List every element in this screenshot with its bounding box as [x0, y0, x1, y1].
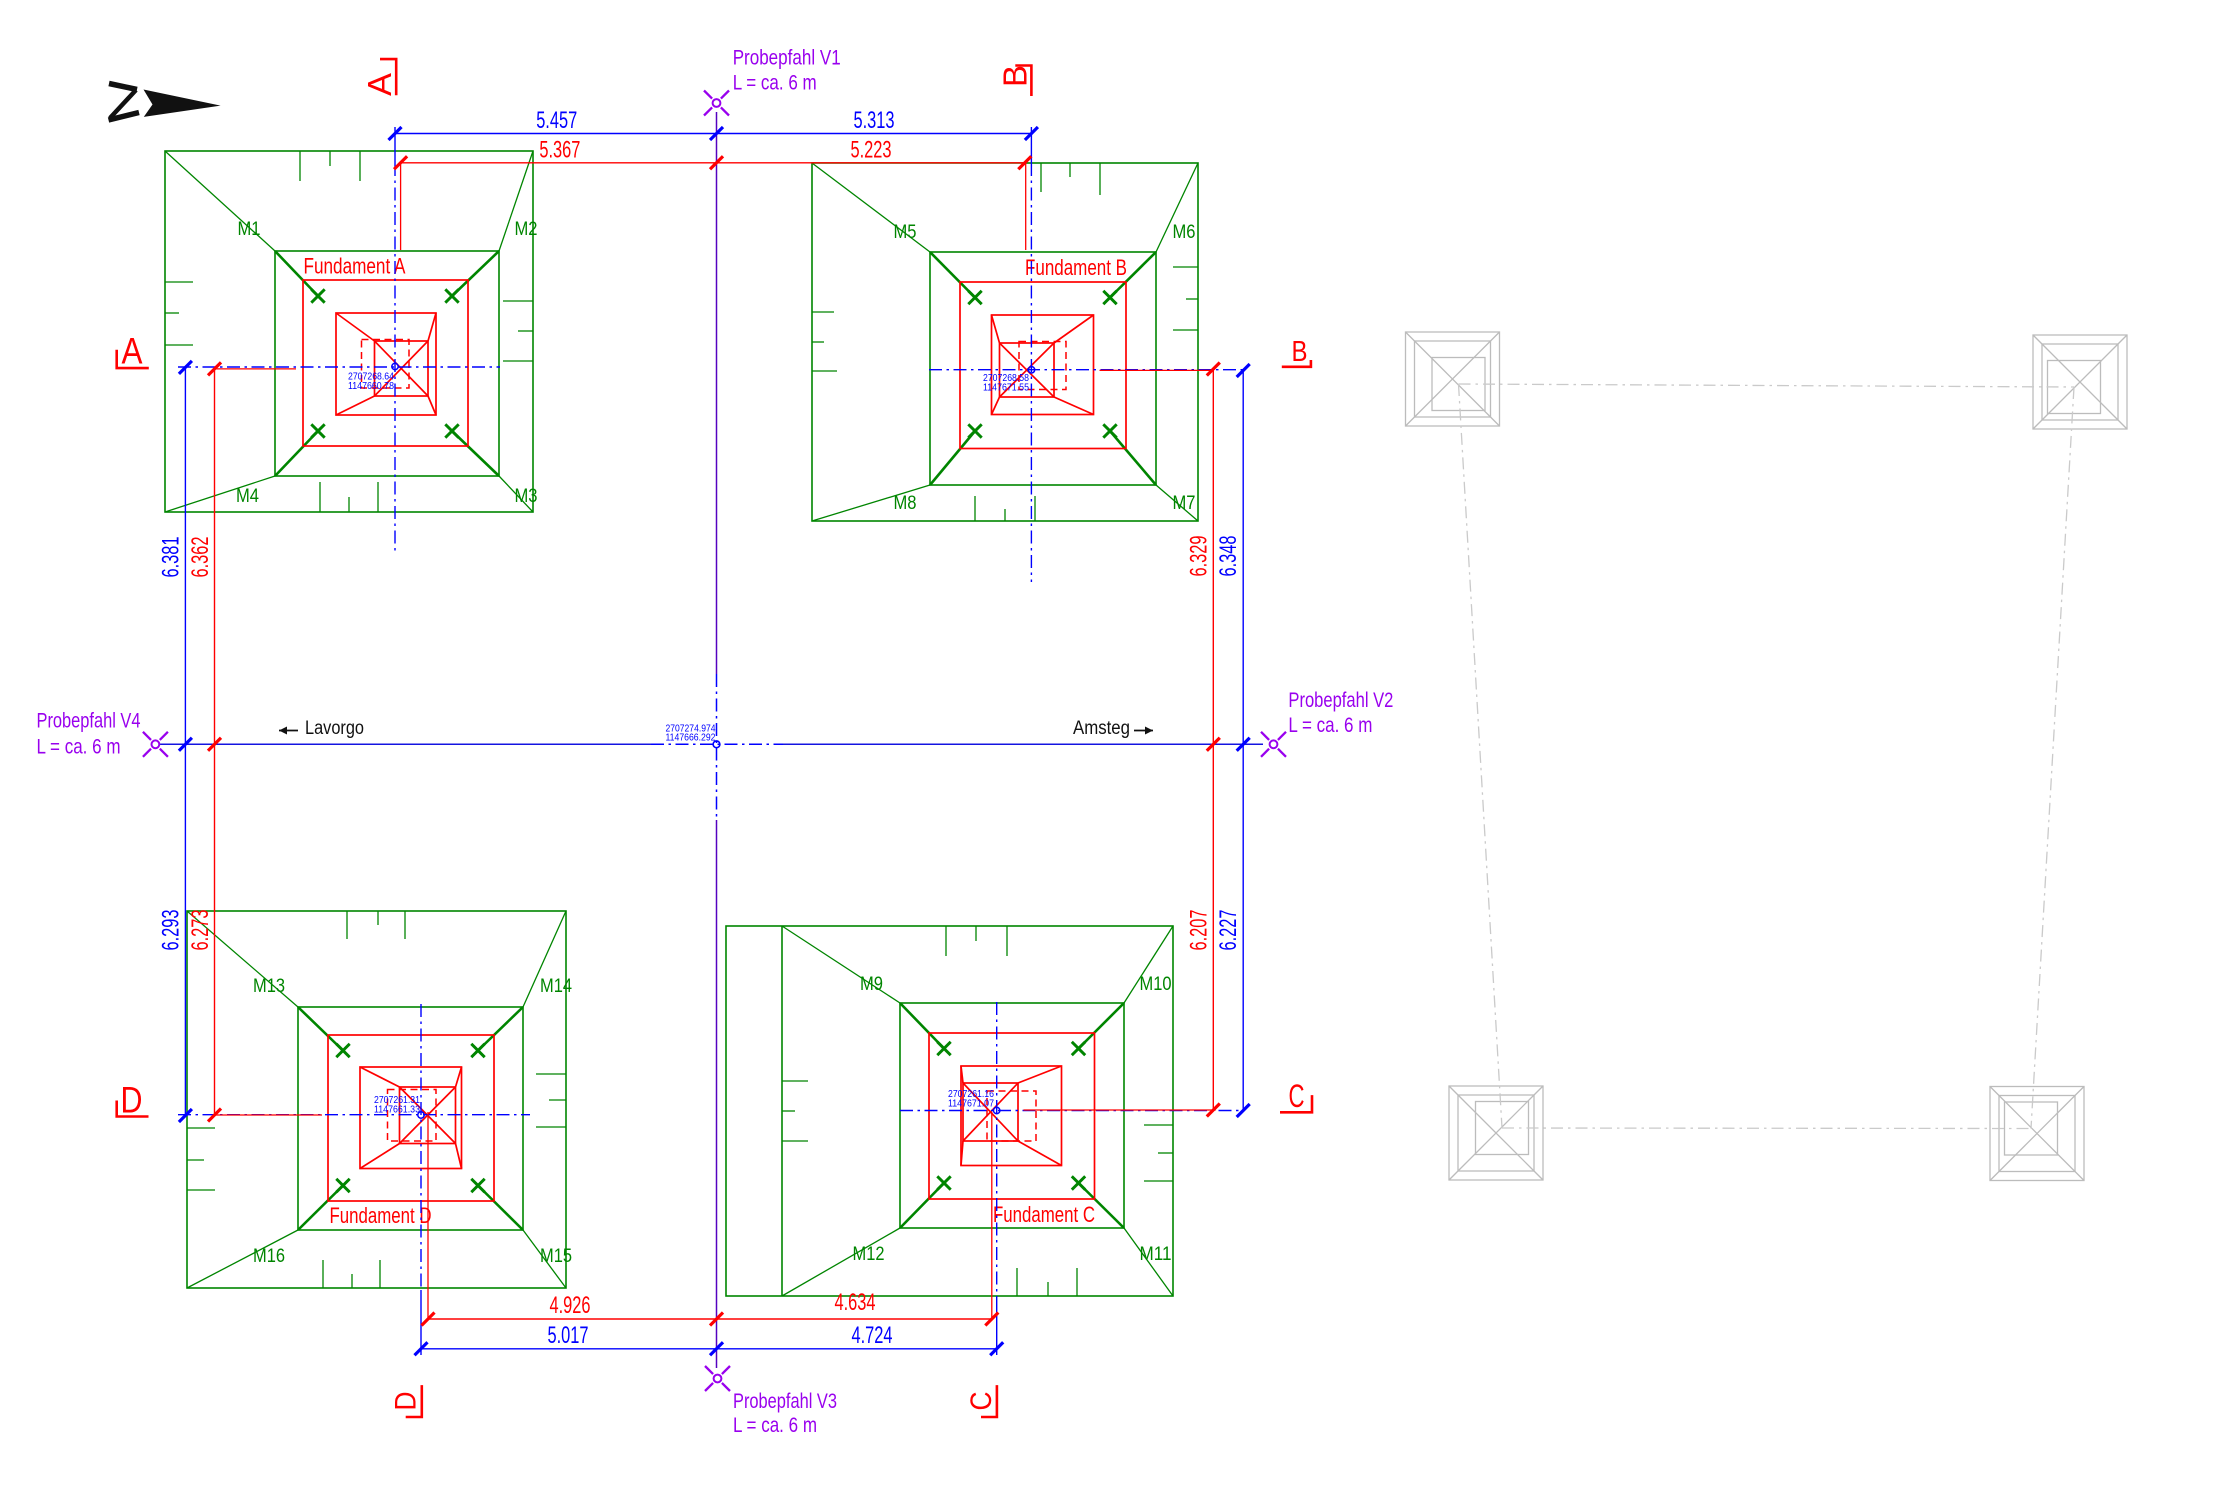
- svg-text:Probepfahl V2: Probepfahl V2: [1288, 689, 1393, 712]
- svg-text:M1: M1: [238, 219, 261, 240]
- svg-text:5.017: 5.017: [548, 1322, 589, 1349]
- svg-text:6.227: 6.227: [1215, 910, 1242, 951]
- svg-text:B: B: [997, 65, 1034, 87]
- svg-text:5.313: 5.313: [854, 107, 895, 134]
- svg-text:Probepfahl V1: Probepfahl V1: [733, 47, 841, 70]
- svg-text:Amsteg: Amsteg: [1073, 718, 1130, 739]
- svg-text:1147661.33: 1147661.33: [374, 1103, 420, 1115]
- svg-text:M10: M10: [1140, 974, 1172, 995]
- svg-text:6.293: 6.293: [158, 910, 185, 951]
- svg-text:D: D: [121, 1080, 143, 1121]
- svg-text:B: B: [1292, 336, 1308, 368]
- svg-text:Fundament A: Fundament A: [304, 254, 406, 279]
- svg-text:A: A: [361, 73, 398, 96]
- svg-text:6.381: 6.381: [158, 537, 185, 578]
- svg-text:M3: M3: [515, 486, 538, 507]
- svg-text:M7: M7: [1173, 493, 1196, 514]
- svg-text:M2: M2: [515, 219, 538, 240]
- svg-text:D: D: [390, 1392, 423, 1411]
- svg-text:1147666.292: 1147666.292: [666, 732, 716, 744]
- svg-text:1147671.55: 1147671.55: [983, 382, 1029, 394]
- svg-text:C: C: [1289, 1078, 1305, 1114]
- svg-text:M8: M8: [894, 493, 917, 514]
- svg-text:5.367: 5.367: [539, 137, 580, 164]
- svg-text:M14: M14: [540, 976, 572, 997]
- svg-text:Probepfahl V4: Probepfahl V4: [37, 710, 141, 733]
- svg-text:5.223: 5.223: [851, 137, 892, 164]
- svg-text:M11: M11: [1140, 1244, 1172, 1265]
- svg-text:M6: M6: [1173, 222, 1196, 243]
- svg-text:4.724: 4.724: [852, 1322, 893, 1349]
- svg-text:M15: M15: [540, 1246, 572, 1267]
- svg-text:L = ca. 6 m: L = ca. 6 m: [733, 72, 817, 95]
- svg-text:L = ca. 6 m: L = ca. 6 m: [733, 1414, 817, 1437]
- svg-text:6.348: 6.348: [1215, 536, 1242, 577]
- svg-text:6.362: 6.362: [187, 537, 214, 578]
- svg-text:C: C: [965, 1392, 998, 1411]
- svg-text:Fundament D: Fundament D: [330, 1203, 432, 1228]
- svg-text:6.207: 6.207: [1185, 910, 1212, 951]
- svg-text:M13: M13: [253, 976, 285, 997]
- svg-text:4.926: 4.926: [550, 1292, 591, 1319]
- svg-text:4.634: 4.634: [835, 1289, 876, 1316]
- svg-text:M4: M4: [236, 486, 259, 507]
- svg-text:6.329: 6.329: [1185, 536, 1212, 577]
- svg-text:A: A: [122, 331, 143, 372]
- svg-text:L = ca. 6 m: L = ca. 6 m: [37, 736, 121, 759]
- svg-text:5.457: 5.457: [536, 107, 577, 134]
- svg-text:M12: M12: [853, 1244, 885, 1265]
- svg-text:Fundament B: Fundament B: [1025, 255, 1127, 280]
- svg-text:L = ca. 6 m: L = ca. 6 m: [1288, 714, 1372, 737]
- svg-text:Fundament C: Fundament C: [993, 1202, 1095, 1227]
- svg-text:Lavorgo: Lavorgo: [305, 718, 364, 739]
- svg-text:Probepfahl V3: Probepfahl V3: [733, 1390, 837, 1413]
- svg-text:1147660.78: 1147660.78: [348, 380, 394, 392]
- svg-text:M16: M16: [253, 1246, 285, 1267]
- svg-text:M9: M9: [860, 974, 883, 995]
- svg-text:6.273: 6.273: [187, 910, 214, 951]
- svg-text:1147671.07: 1147671.07: [948, 1097, 994, 1109]
- svg-text:M5: M5: [894, 222, 917, 243]
